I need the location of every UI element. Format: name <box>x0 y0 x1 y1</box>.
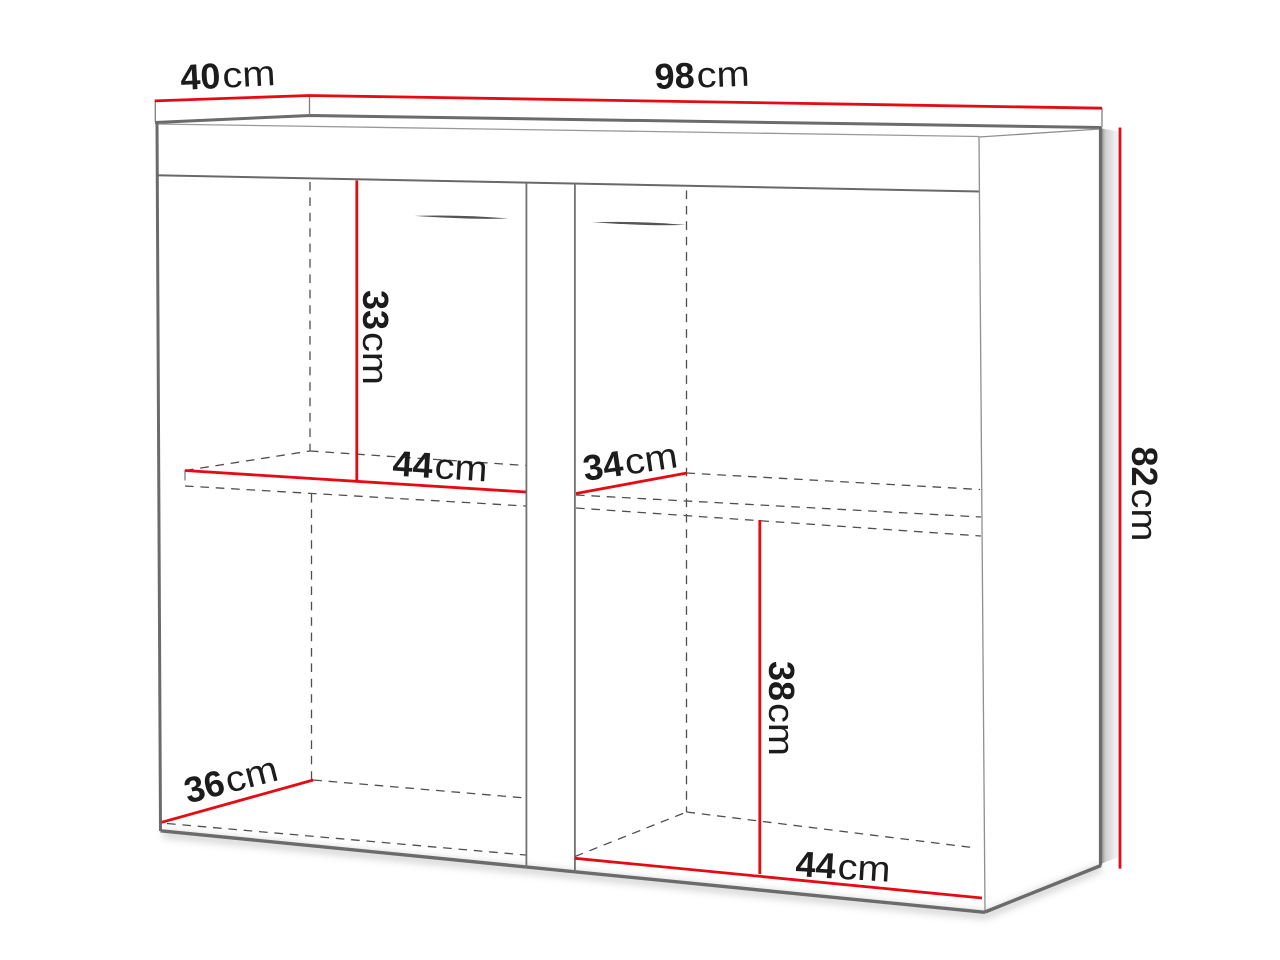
svg-text:82cm: 82cm <box>1124 447 1165 542</box>
svg-text:44cm: 44cm <box>391 443 488 490</box>
svg-text:44cm: 44cm <box>795 843 892 890</box>
svg-text:33cm: 33cm <box>355 290 396 385</box>
svg-text:34cm: 34cm <box>580 434 680 489</box>
svg-text:40cm: 40cm <box>179 52 276 98</box>
svg-text:98cm: 98cm <box>654 53 750 97</box>
svg-text:38cm: 38cm <box>761 661 802 756</box>
